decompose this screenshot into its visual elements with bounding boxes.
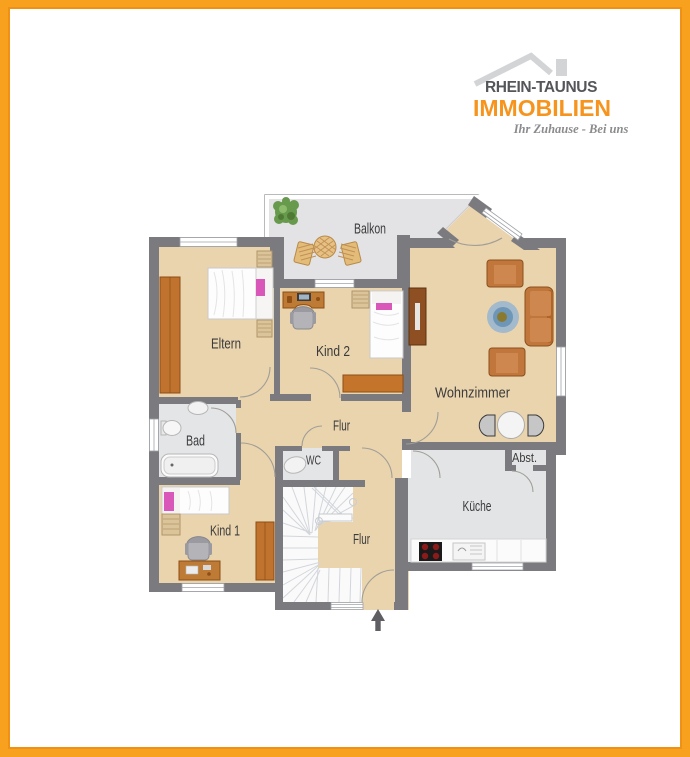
svg-text:IMMOBILIEN: IMMOBILIEN [473, 95, 611, 121]
svg-text:Küche: Küche [463, 499, 492, 515]
svg-text:Ihr Zuhause - Bei uns: Ihr Zuhause - Bei uns [513, 122, 629, 136]
svg-text:Kind 1: Kind 1 [210, 524, 240, 540]
svg-text:RHEIN-TAUNUS: RHEIN-TAUNUS [485, 79, 597, 96]
svg-text:Kind 2: Kind 2 [316, 344, 350, 360]
svg-text:Bad: Bad [186, 434, 205, 450]
svg-text:Balkon: Balkon [354, 222, 386, 238]
svg-text:Wohnzimmer: Wohnzimmer [435, 386, 510, 402]
svg-text:Abst.: Abst. [512, 450, 537, 465]
svg-text:WC: WC [306, 453, 321, 468]
svg-text:Flur: Flur [333, 419, 350, 435]
svg-text:Flur: Flur [353, 532, 370, 548]
svg-text:Eltern: Eltern [211, 337, 241, 353]
